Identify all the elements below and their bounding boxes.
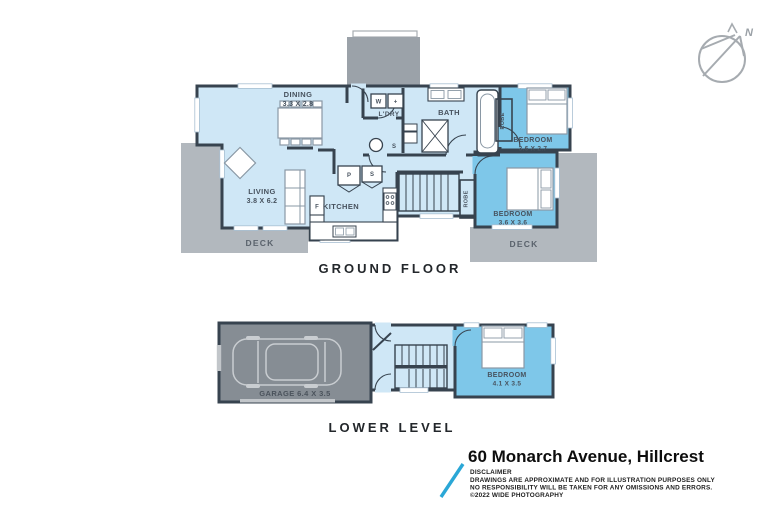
address-title: 60 Monarch Avenue, Hillcrest (468, 447, 704, 466)
floor-plan-drawing: W + S (0, 0, 768, 512)
bedroom-top-label: BEDROOM (513, 137, 552, 144)
lower-bedroom-label: BEDROOM (487, 372, 526, 379)
disclaimer-title: DISCLAIMER (470, 469, 512, 476)
deck-left-label: DECK (246, 238, 275, 248)
garage-door (240, 399, 335, 403)
washer-label: W (376, 100, 382, 106)
bath-label: BATH (438, 108, 460, 117)
bedroom-bottom-label: BEDROOM (493, 211, 532, 218)
bedroom-top-dims: 3.6 X 2.7 (519, 146, 548, 153)
living-dims: 3.8 X 6.2 (247, 198, 278, 205)
robe-bottom-label: ROBE (464, 190, 470, 207)
garage-window (217, 345, 221, 371)
ground-floor-title: GROUND FLOOR (319, 261, 462, 276)
fridge-label: F (315, 205, 319, 211)
kitchen-label: KITCHEN (323, 202, 359, 211)
disclaimer-line-3: ©2022 WIDE PHOTOGRAPHY (470, 491, 564, 499)
lower-level-plan: GARAGE 6.4 X 3.5 BEDROOM 4.1 X 3.5 LOWER… (217, 323, 556, 436)
bed-bottom-icon (507, 168, 553, 210)
floor-plan-page: W + S (0, 0, 768, 512)
kitchen-shelf-label: S (370, 172, 374, 178)
dryer-label: + (394, 100, 398, 106)
robe-top-label: ROBE (500, 112, 506, 129)
entry-porch (347, 37, 420, 87)
basin-icon (370, 139, 383, 152)
sofa-icon (285, 170, 305, 224)
compass-needle (703, 36, 740, 76)
wc-shelf-label: S (392, 144, 396, 150)
bed-top-icon (527, 88, 567, 134)
toilet-icon (404, 124, 417, 131)
disclaimer-line-2: NO RESPONSIBILITY WILL BE TAKEN FOR ANY … (470, 485, 712, 492)
entry-step (353, 31, 417, 37)
deck-right-label: DECK (510, 239, 539, 249)
compass-circle (699, 36, 745, 82)
lower-level-title: LOWER LEVEL (329, 420, 456, 435)
garage-label: GARAGE 6.4 X 3.5 (259, 389, 330, 398)
disclaimer-line-1: DRAWINGS ARE APPROXIMATE AND FOR ILLUSTR… (470, 477, 715, 484)
ground-stairs (399, 174, 459, 211)
bedroom-bottom-dims: 3.6 X 3.6 (499, 220, 528, 227)
compass-north-label: N (745, 27, 754, 39)
compass: N (699, 24, 754, 82)
pantry-label: P (347, 173, 351, 179)
dining-table-icon (278, 108, 322, 138)
lower-bed-icon (482, 326, 524, 368)
footer: 60 Monarch Avenue, Hillcrest DISCLAIMER … (441, 447, 715, 499)
living-label: LIVING (248, 187, 275, 196)
dining-label: DINING (284, 90, 313, 99)
lower-bedroom-dims: 4.1 X 3.5 (493, 381, 522, 388)
stove-icon (384, 193, 396, 210)
laundry-label: L'DRY (379, 111, 400, 118)
brand-logo-stroke (441, 464, 463, 497)
compass-flag (728, 24, 737, 33)
ground-floor-plan: W + S (181, 31, 597, 276)
dining-dims: 3.3 X 2.8 (283, 101, 314, 108)
